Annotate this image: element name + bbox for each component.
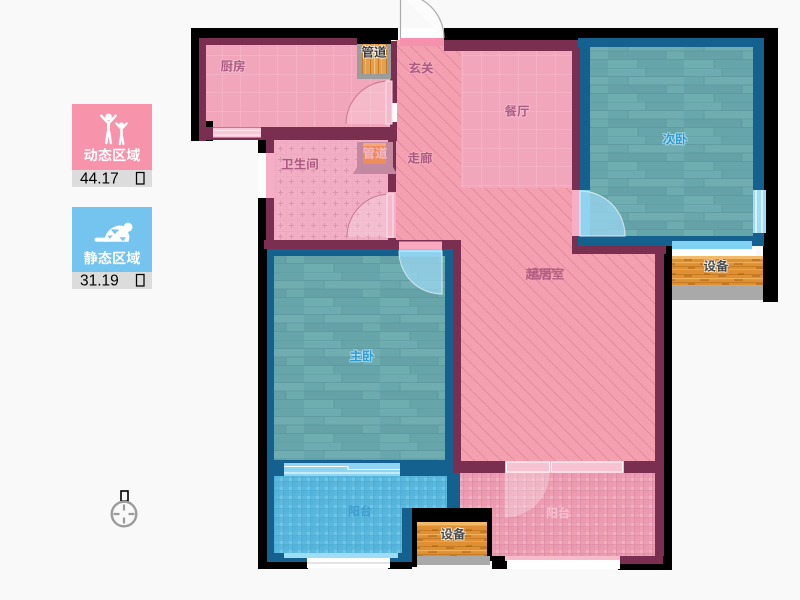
svg-text:44.17: 44.17 (80, 171, 119, 188)
svg-text:31.19: 31.19 (80, 273, 119, 290)
